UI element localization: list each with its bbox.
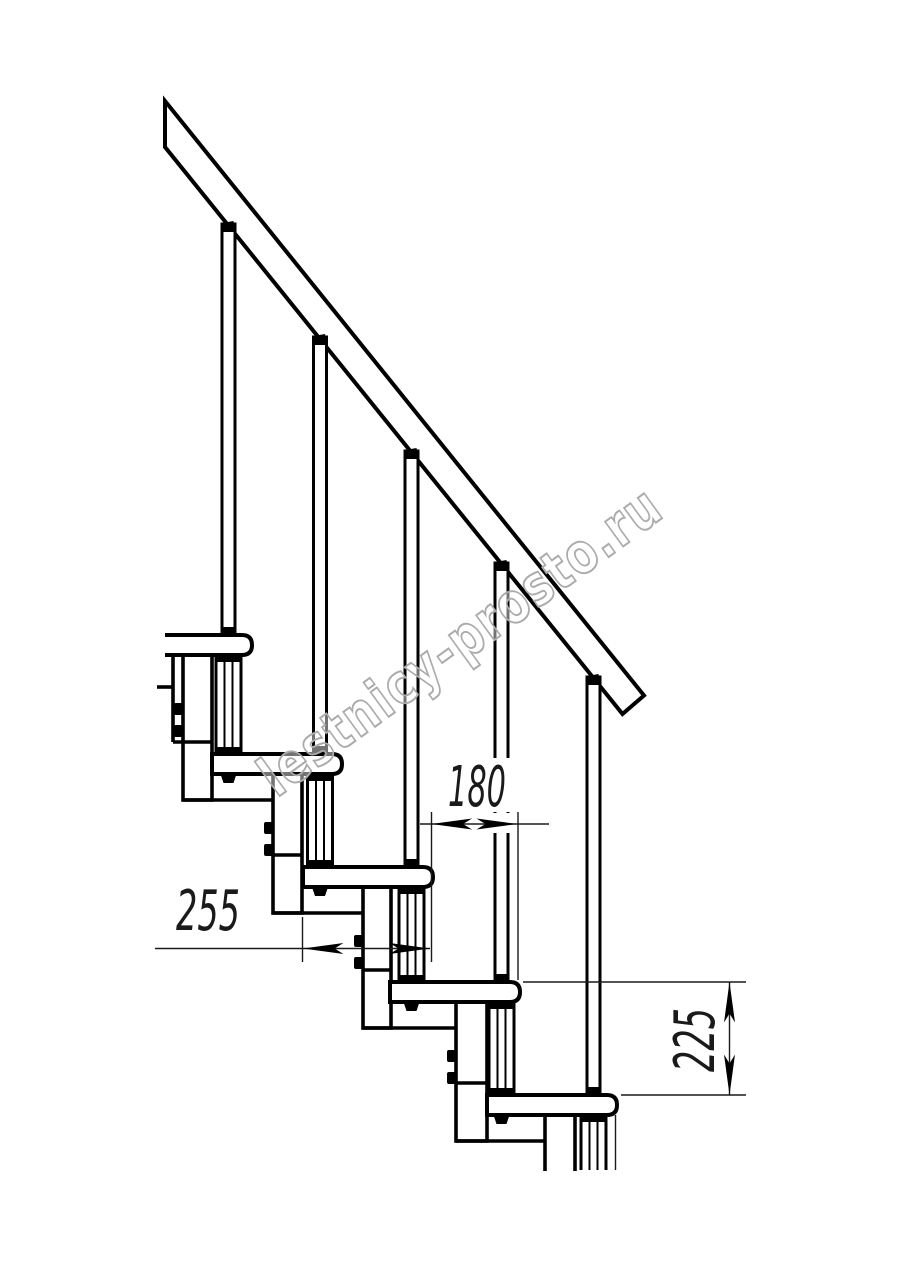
tread-1 [165,635,252,655]
baluster-5 [587,677,600,1095]
bolt-icon [354,957,363,969]
connector-icon [404,859,420,867]
connector-rod-5 [581,1115,606,1170]
connector-icon [307,860,334,867]
connector-icon [398,887,425,894]
bolt-icon [447,1050,456,1062]
nut-icon [221,774,237,783]
connector-icon [494,974,510,982]
tread-5 [487,1095,617,1115]
connector-icon [488,1002,515,1009]
connector-rod-4 [489,1002,514,1095]
connector-icon [215,747,242,754]
baluster-2 [314,337,327,754]
connector-icon [398,975,425,982]
connector-icon [586,1087,602,1095]
bolt-icon [264,822,273,834]
connector-rod-1 [216,655,241,754]
connector-rod-3 [399,887,424,982]
nut-icon [404,1002,420,1011]
staircase-drawing: 180 255 225 lestnicy-prosto.ru [0,0,914,1280]
bolt-icon [174,725,183,737]
tread-4 [390,982,520,1002]
bolt-icon [174,703,183,715]
connector-icon [488,1088,515,1095]
bolt-icon [264,844,273,856]
nut-icon [494,1115,510,1124]
connector-icon [215,655,242,662]
connector-icon [580,1115,607,1122]
nut-icon [312,887,328,896]
dimension-label-offset: 180 [448,755,506,820]
connector-icon [221,627,237,635]
dimension-label-run: 255 [176,879,240,944]
bolt-icon [354,935,363,947]
column-module-4 [456,1002,487,1141]
dimension-180 [420,812,549,980]
bolt-icon [447,1072,456,1084]
column-module-1 [183,655,212,800]
column-module-3 [363,887,391,1028]
baluster-1 [222,224,235,635]
dimension-label-rise: 225 [663,1008,728,1072]
tread-3 [303,867,433,887]
